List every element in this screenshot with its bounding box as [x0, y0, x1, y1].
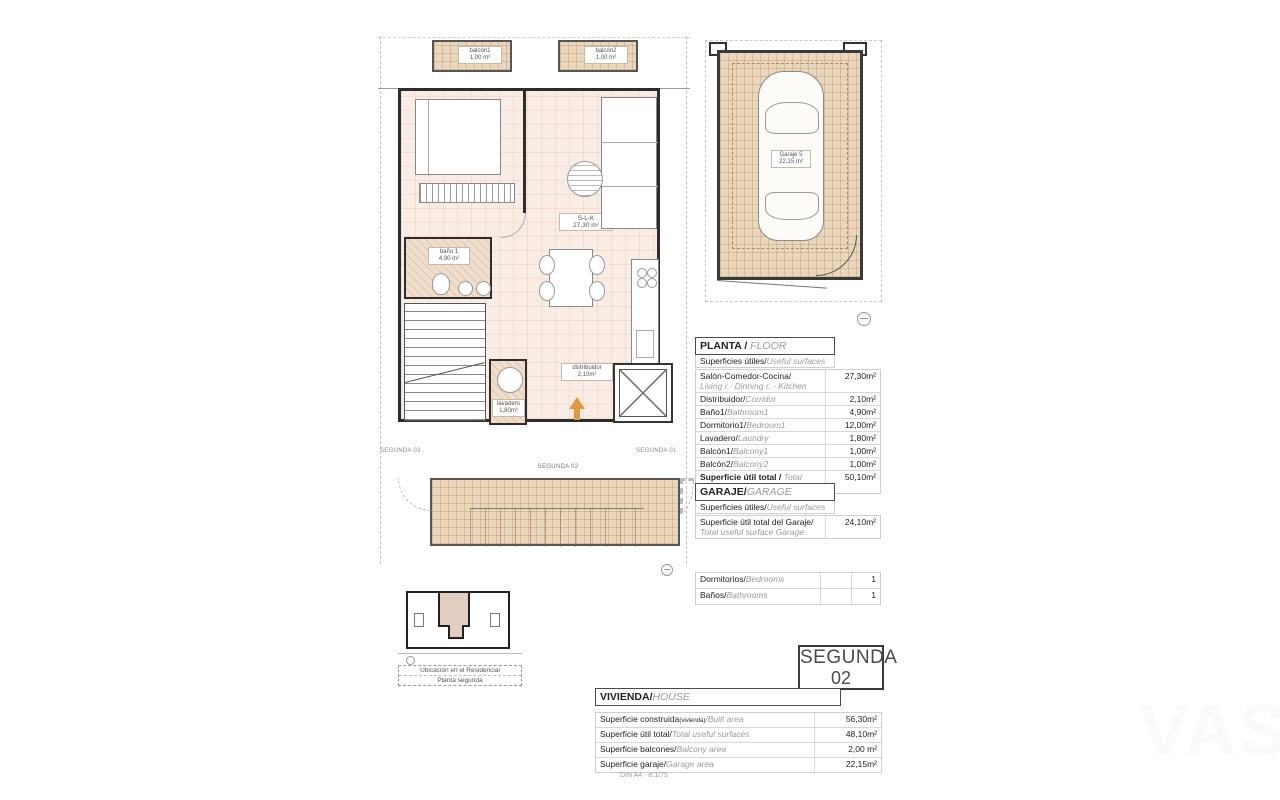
- garage-subtitle-es: Superficies útiles/: [700, 502, 767, 512]
- table-row: Superficie balcones/Balcony area 2,00 m²: [596, 743, 881, 758]
- elevator-cab: [619, 369, 667, 417]
- elevator-shaft: [613, 363, 673, 423]
- door-arc-right-unit: [680, 478, 694, 514]
- row-label-es: Dormitorios/: [700, 574, 746, 584]
- car: Garaje 5 22,15 m²: [758, 71, 824, 241]
- row-label-en: Garage area: [666, 759, 714, 769]
- row-spacer-cell: [820, 589, 851, 604]
- elevator-x-icon: [620, 370, 666, 416]
- row-label-en: Bathrooms: [726, 590, 767, 600]
- plan-symbol-icon: [661, 564, 673, 576]
- row-label-es: Salón-Comedor-Cocina/: [700, 371, 791, 381]
- table-row: Balcón2/Balcony2 1,00m²: [696, 458, 880, 471]
- house-table: Superficie construida(vivienda)/Built ar…: [595, 712, 882, 773]
- floor-table: Salón-Comedor-Cocina/ Living r.· Dinning…: [695, 369, 881, 494]
- plan-symbol-line: [664, 569, 670, 570]
- location-caption-line1: Ubicación en el Residencial: [399, 666, 521, 676]
- balcony-1-name: balcón1: [469, 48, 490, 54]
- row-label-en: Bedrooms: [746, 574, 785, 584]
- row-value: 1,00m²: [825, 445, 880, 457]
- house-table-title: VIVIENDA/HOUSE: [595, 688, 841, 706]
- row-label: Balcón1/Balcony1: [696, 445, 825, 457]
- garage-symbol-icon: [857, 312, 871, 326]
- hall-area: 2,10m²: [578, 372, 597, 378]
- garage-name: Garaje 5: [779, 152, 802, 158]
- laundry-area: 1,80m²: [499, 408, 518, 414]
- row-value: 56,30m²: [814, 713, 881, 727]
- row-label-en: Living r.· Dinning r. · Kitchen: [700, 381, 807, 391]
- garage-label: Garaje 5 22,15 m²: [771, 150, 811, 168]
- slk-name: S-L-K: [578, 215, 595, 222]
- garage-plan: Garaje 5 22,15 m²: [705, 40, 882, 324]
- ground-line: [398, 653, 522, 654]
- sofa-cushion-line-1: [602, 142, 658, 143]
- row-label: Baños/Bathrooms: [696, 589, 820, 604]
- row-value: 1,00m²: [825, 458, 880, 470]
- main-floor-plan: balcón1 1,00 m² balcón2 1,00 m² bañ: [378, 36, 690, 578]
- unit-badge-line1: SEGUNDA: [800, 647, 882, 669]
- table-row: Lavadero/Laundry 1,80m²: [696, 432, 880, 445]
- row-spacer-cell: [820, 573, 851, 588]
- garage-table: Superficie útil total del Garaje/ Total …: [695, 515, 881, 539]
- laundry-name: lavadero: [497, 401, 520, 407]
- garage-table-subtitle: Superficies útiles/Useful surfaces: [695, 501, 835, 514]
- garage-area: 22,15 m²: [779, 159, 803, 165]
- terrace-steps: [470, 508, 644, 547]
- floor-title-en: FLOOR: [750, 340, 786, 352]
- stair-core-right: [490, 613, 500, 627]
- row-value: 22,15m²: [814, 758, 881, 772]
- row-value: 24,10m²: [825, 516, 880, 538]
- garage-room: Garaje 5 22,15 m²: [717, 50, 863, 280]
- row-label: Dormitorio1/Bedroom1: [696, 419, 825, 431]
- row-label: Superficie útil total/Total useful surfa…: [596, 728, 814, 742]
- table-row: Superficie garaje/Garage area 22,15m²: [596, 758, 881, 772]
- kitchen-sink: [636, 330, 654, 358]
- row-label: Superficie construida(vivienda)/Built ar…: [596, 713, 814, 727]
- table-row: Salón-Comedor-Cocina/ Living r.· Dinning…: [696, 370, 880, 393]
- row-label-es: Superficie útil total/: [600, 729, 672, 739]
- kitchen-counter: [631, 259, 659, 379]
- sofa: [601, 97, 657, 229]
- house-title-es: VIVIENDA/: [600, 691, 653, 703]
- hall-label: distribuidor 2,10m²: [561, 363, 613, 381]
- stair-core-left: [414, 613, 424, 627]
- scale-note: DIN A4 - e:1/75: [620, 772, 668, 779]
- location-caption: Ubicación en el Residencial Planta segun…: [398, 665, 522, 686]
- row-label: Balcón2/Balcony2: [696, 458, 825, 470]
- stairs-cut-line: [405, 362, 485, 383]
- stove-burner-2: [647, 268, 657, 278]
- toilet: [432, 273, 450, 295]
- stove-burner-1: [637, 268, 647, 278]
- car-windshield: [765, 102, 819, 134]
- row-label-en: Balcony1: [733, 446, 768, 456]
- floor-table-title: PLANTA / FLOOR: [695, 337, 835, 355]
- row-value: 1: [851, 573, 880, 588]
- garage-door-arc: [816, 235, 857, 276]
- table-row: Distribuidor/Corridor 2,10m²: [696, 393, 880, 406]
- row-label-en: Corridor: [745, 394, 776, 404]
- unit-badge: SEGUNDA 02: [798, 645, 884, 690]
- bed: [415, 99, 501, 175]
- balcony-2: balcón2 1,00 m²: [558, 40, 638, 72]
- row-label-en: Total useful surface Garage: [700, 527, 804, 537]
- row-label-en: Bedroom1: [746, 420, 785, 430]
- stairs: [404, 303, 486, 421]
- row-value: 1,80m²: [825, 432, 880, 444]
- floor-title-es: PLANTA /: [700, 340, 750, 352]
- stove-burner-4: [647, 278, 657, 288]
- rooms-table: Dormitorios/Bedrooms 1 Baños/Bathrooms 1: [695, 572, 881, 605]
- bed-pillow: [416, 100, 429, 176]
- stove-burner-3: [637, 278, 647, 288]
- watermark: VAS: [1140, 690, 1280, 772]
- row-label-en: /Built area: [705, 714, 743, 724]
- row-label: Distribuidor/Corridor: [696, 393, 825, 405]
- row-label-small: (vivienda): [679, 718, 705, 724]
- garage-table-title: GARAJE/GARAGE: [695, 483, 835, 501]
- row-label-es: Superficie garaje/: [600, 759, 666, 769]
- row-label-es: Superficie útil total del Garaje/: [700, 517, 813, 527]
- chair-1: [539, 255, 555, 275]
- row-value: 1: [851, 589, 880, 604]
- boundary-line-top: [378, 37, 690, 38]
- unit-badge-line2: 02: [800, 669, 882, 688]
- balcony-1-label: balcón1 1,00 m²: [458, 46, 502, 64]
- sink-2: [476, 281, 491, 296]
- bathroom: baño 1 4,90 m²: [404, 237, 492, 299]
- row-value: 2,10m²: [825, 393, 880, 405]
- laundry-room: lavadero 1,80m²: [489, 359, 527, 425]
- balcony-2-area: 1,00 m²: [596, 55, 616, 61]
- floor-subtitle-es: Superficies útiles/: [700, 356, 767, 366]
- row-label-es: Distribuidor/: [700, 394, 745, 404]
- left-unit-label: SEGUNDA 03: [380, 448, 421, 454]
- unit-label: SEGUNDA 02: [508, 464, 608, 470]
- row-label-en: Balcony2: [733, 459, 768, 469]
- table-row: Baños/Bathrooms 1: [696, 589, 880, 604]
- total-label-es: Superficie útil total /: [700, 472, 784, 482]
- balcony-2-label: balcón2 1,00 m²: [584, 46, 628, 64]
- row-label: Superficie balcones/Balcony area: [596, 743, 814, 757]
- table-row: Superficie útil total/Total useful surfa…: [596, 728, 881, 743]
- boundary-line-left: [380, 36, 381, 564]
- table-row: Superficie construida(vivienda)/Built ar…: [596, 713, 881, 728]
- row-value: 2,00 m²: [814, 743, 881, 757]
- row-label-en: Balcony area: [677, 744, 727, 754]
- row-label-es: Superficie construida: [600, 714, 679, 724]
- dining-table: [549, 249, 593, 307]
- partition-wall: [523, 91, 526, 213]
- row-label: Baño1/Bathroom1: [696, 406, 825, 418]
- row-label-es: Baño1/: [700, 407, 727, 417]
- table-row: Balcón1/Balcony1 1,00m²: [696, 445, 880, 458]
- right-unit-label: SEGUNDA 01: [636, 448, 677, 454]
- floor-subtitle-en: Useful surfaces: [767, 356, 826, 366]
- row-label: Lavadero/Laundry: [696, 432, 825, 444]
- entrance-arrow-stem: [574, 408, 580, 420]
- row-label-es: Superficie balcones/: [600, 744, 677, 754]
- table-row: Superficie útil total del Garaje/ Total …: [696, 516, 880, 538]
- sink-1: [458, 281, 473, 296]
- location-caption-line2: Planta segunda: [399, 676, 521, 685]
- slk-area: 27,30 m²: [573, 222, 599, 229]
- row-value: 12,00m²: [825, 419, 880, 431]
- garage-title-en: GARAGE: [747, 486, 792, 498]
- chair-2: [539, 281, 555, 301]
- location-symbol-icon: [406, 656, 415, 665]
- row-value: 27,30m²: [825, 370, 880, 392]
- garage-symbol-line: [860, 318, 868, 319]
- row-label-es: Balcón2/: [700, 459, 733, 469]
- balcony-2-name: balcón2: [595, 48, 616, 54]
- row-label-en: Total useful surfaces: [672, 729, 750, 739]
- row-label: Superficie garaje/Garage area: [596, 758, 814, 772]
- row-label: Superficie útil total del Garaje/ Total …: [696, 516, 825, 538]
- hall-name: distribuidor: [572, 365, 601, 371]
- chair-3: [589, 255, 605, 275]
- landing-terrace: [430, 478, 680, 546]
- sofa-cushion-line-2: [602, 186, 658, 187]
- balcony-1-area: 1,00 m²: [470, 55, 490, 61]
- floor-table-subtitle: Superficies útiles/Useful surfaces: [695, 355, 835, 368]
- row-value: 4,90m²: [825, 406, 880, 418]
- row-label-en: Bathroom1: [727, 407, 769, 417]
- residential-outline: [406, 591, 510, 649]
- bathroom-area: 4,90 m²: [439, 256, 459, 262]
- table-row: Baño1/Bathroom1 4,90m²: [696, 406, 880, 419]
- door-arc-left-unit: [398, 478, 431, 511]
- row-label-es: Baños/: [700, 590, 726, 600]
- garage-title-es: GARAJE/: [700, 486, 747, 498]
- plan-sheet: balcón1 1,00 m² balcón2 1,00 m² bañ: [0, 0, 1280, 800]
- balcony-1: balcón1 1,00 m²: [432, 40, 512, 72]
- row-label: Dormitorios/Bedrooms: [696, 573, 820, 588]
- row-label-en: Laundry: [738, 433, 769, 443]
- row-label-es: Dormitorio1/: [700, 420, 746, 430]
- row-label-es: Lavadero/: [700, 433, 738, 443]
- house-title-en: HOUSE: [653, 691, 690, 703]
- laundry-label: lavadero 1,80m²: [492, 399, 525, 417]
- table-row: Dormitorio1/Bedroom1 12,00m²: [696, 419, 880, 432]
- washing-machine: [497, 367, 523, 393]
- row-value: 48,10m²: [814, 728, 881, 742]
- bathroom-name: baño 1: [440, 249, 458, 255]
- row-label-es: Balcón1/: [700, 446, 733, 456]
- table-row: Dormitorios/Bedrooms 1: [696, 573, 880, 589]
- chair-4: [589, 281, 605, 301]
- bedroom-door-arc: [501, 213, 526, 238]
- highlighted-unit: [438, 591, 470, 627]
- car-rear-window: [765, 192, 819, 220]
- wardrobe: [419, 183, 515, 203]
- row-label: Salón-Comedor-Cocina/ Living r.· Dinning…: [696, 370, 825, 392]
- apartment-walls: baño 1 4,90 m² S-L-K 27,30 m²: [398, 88, 660, 422]
- location-plan: Ubicación en el Residencial Planta segun…: [398, 583, 522, 683]
- bathroom-label: baño 1 4,90 m²: [428, 247, 470, 265]
- garage-subtitle-en: Useful surfaces: [767, 502, 826, 512]
- round-rug: [567, 161, 603, 197]
- highlighted-unit-notch: [448, 625, 464, 639]
